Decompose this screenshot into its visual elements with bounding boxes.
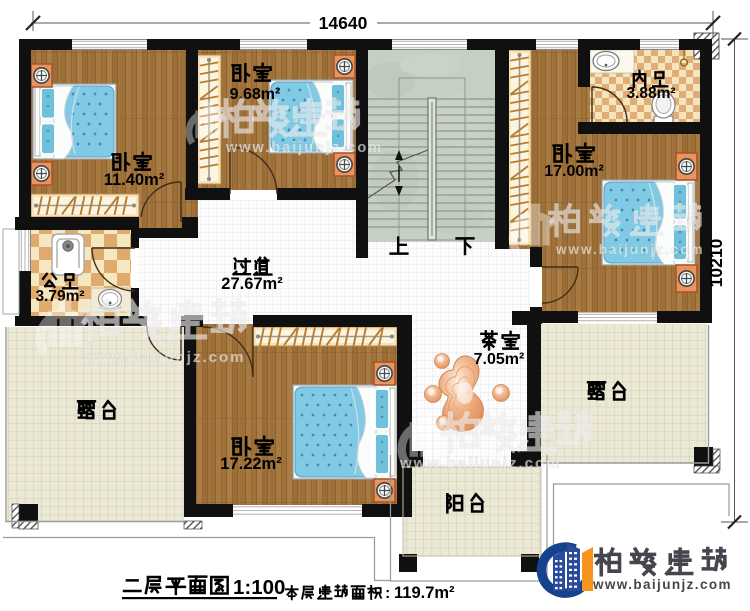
svg-text::: : xyxy=(385,585,390,602)
svg-text:www.baijunjz.com: www.baijunjz.com xyxy=(399,455,561,472)
svg-text:www.baijunjz.com: www.baijunjz.com xyxy=(555,242,705,257)
svg-text:1:100: 1:100 xyxy=(233,576,285,599)
svg-text:www.baijunjz.com: www.baijunjz.com xyxy=(592,577,732,592)
svg-text:17.00m²: 17.00m² xyxy=(544,163,604,180)
svg-text:27.67m²: 27.67m² xyxy=(221,275,283,293)
svg-text:9.68m²: 9.68m² xyxy=(230,86,281,103)
svg-text:14640: 14640 xyxy=(319,13,368,33)
svg-text:www.baijunjz.com: www.baijunjz.com xyxy=(83,349,245,366)
svg-text:119.7m²: 119.7m² xyxy=(394,584,455,602)
svg-text:3.88m²: 3.88m² xyxy=(626,85,675,102)
svg-text:7.05m²: 7.05m² xyxy=(474,351,525,368)
svg-text:10210: 10210 xyxy=(706,238,726,287)
svg-text:11.40m²: 11.40m² xyxy=(104,171,165,189)
svg-text:www.baijunjz.com: www.baijunjz.com xyxy=(225,140,383,156)
svg-text:17.22m²: 17.22m² xyxy=(220,455,282,473)
